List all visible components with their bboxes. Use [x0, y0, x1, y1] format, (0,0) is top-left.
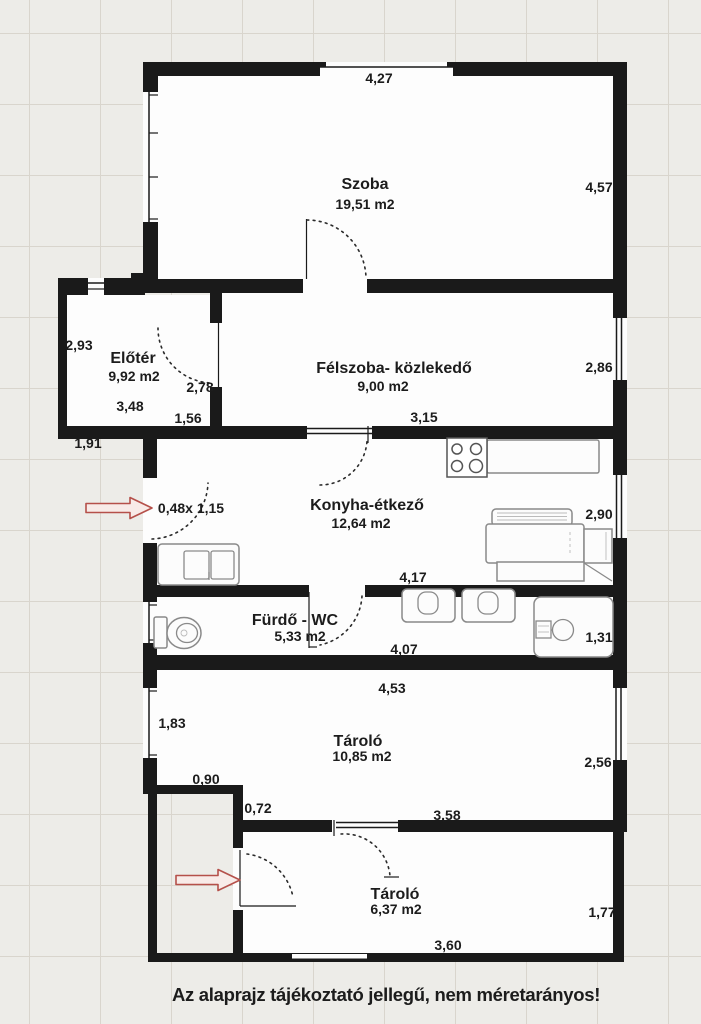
dim-konyha-opening: 0,48x 1,15: [158, 500, 224, 516]
stove-burner: [452, 461, 463, 472]
disclaimer-caption: Az alaprajz tájékoztató jellegű, nem mér…: [172, 984, 600, 1005]
room-floor-tarolo2: [243, 832, 613, 953]
dim-furdo-bottom: 4,07: [390, 641, 417, 657]
dim-szoba-top: 4,27: [365, 70, 392, 86]
dim-wall-072: 0,72: [244, 800, 271, 816]
dim-felszoba-bottom: 3,15: [410, 409, 437, 425]
stove-burner: [452, 444, 462, 454]
dim-tarolo1-top: 4,53: [378, 680, 405, 696]
dim-tarolo2-bottom: 3,60: [434, 937, 461, 953]
stove-burner: [471, 444, 482, 455]
floorplan-canvas: 4,27 Szoba 19,51 m2 4,57 2,93 Előtér 9,9…: [0, 0, 701, 1024]
dim-konyha-right: 2,90: [585, 506, 612, 522]
dim-furdo-right: 1,31: [585, 629, 612, 645]
dim-eloter-below: 1,91: [74, 435, 101, 451]
dim-tarolo2-right: 1,77: [588, 904, 615, 920]
dim-felszoba-right: 2,86: [585, 359, 612, 375]
dim-eloter-bottom: 1,56: [174, 410, 201, 426]
room-area-szoba: 19,51 m2: [335, 196, 394, 212]
room-area-felszoba: 9,00 m2: [357, 378, 409, 394]
room-area-eloter: 9,92 m2: [108, 368, 160, 384]
dim-tarolo1-right: 2,56: [584, 754, 611, 770]
kitchen-sink: [158, 544, 239, 585]
dim-wall-090: 0,90: [192, 771, 219, 787]
kitchen-counter: [487, 440, 599, 473]
room-label-furdo: Fürdő - WC: [252, 612, 339, 629]
dim-tarolo1-bottom: 3,58: [433, 807, 460, 823]
room-label-konyha: Konyha-étkező: [310, 497, 424, 514]
washbasin: [462, 589, 515, 622]
stove-burner: [470, 460, 483, 473]
room-label-felszoba: Félszoba- közlekedő: [316, 360, 472, 377]
dim-eloter-left: 2,93: [65, 337, 92, 353]
room-area-konyha: 12,64 m2: [331, 515, 390, 531]
entry-arrow-konyha: [86, 498, 152, 519]
washbasin: [402, 589, 455, 622]
room-label-szoba: Szoba: [341, 176, 388, 193]
dim-konyha-bottom: 4,17: [399, 569, 426, 585]
room-area-tarolo1: 10,85 m2: [332, 748, 391, 764]
dim-eloter-width: 3,48: [116, 398, 143, 414]
bathtub: [534, 597, 613, 657]
dim-eloter-door: 2,78: [186, 379, 213, 395]
room-area-furdo: 5,33 m2: [274, 628, 326, 644]
room-label-eloter: Előtér: [110, 350, 155, 367]
room-area-tarolo2: 6,37 m2: [370, 901, 422, 917]
dim-szoba-right: 4,57: [585, 179, 612, 195]
toilet: [154, 617, 201, 649]
dim-tarolo1-left: 1,83: [158, 715, 185, 731]
